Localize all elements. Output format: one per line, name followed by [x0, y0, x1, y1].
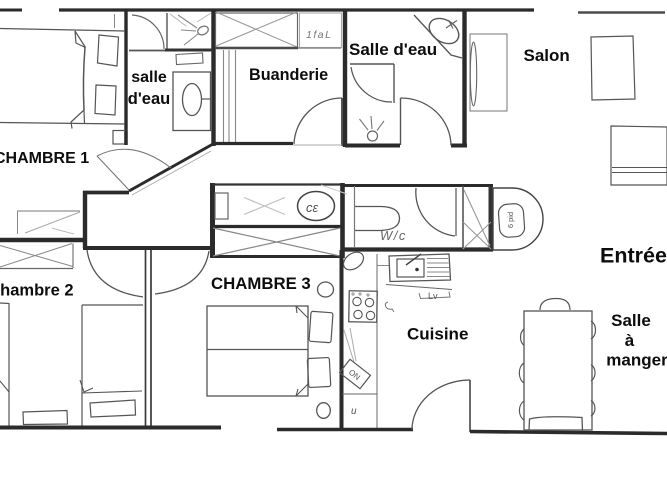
svg-text:1faL: 1faL — [306, 29, 332, 41]
svg-text:cε: cε — [306, 200, 319, 215]
svg-text:Cuisine: Cuisine — [407, 325, 468, 344]
svg-text:Entrée: Entrée — [600, 244, 667, 268]
svg-text:6 pid: 6 pid — [506, 212, 515, 228]
svg-text:Lv: Lv — [428, 291, 438, 301]
svg-text:manger: manger — [606, 351, 667, 370]
svg-text:d'eau: d'eau — [128, 90, 170, 108]
svg-text:u: u — [351, 406, 357, 417]
svg-text:Salle: Salle — [611, 311, 651, 330]
svg-text:Salle d'eau: Salle d'eau — [349, 40, 437, 59]
svg-text:Buanderie: Buanderie — [249, 66, 328, 84]
svg-text:chambre 2: chambre 2 — [0, 282, 74, 300]
svg-text:à: à — [625, 331, 635, 350]
svg-text:Salon: Salon — [524, 46, 570, 65]
svg-text:W/c: W/c — [380, 228, 407, 243]
svg-text:CHAMBRE 1: CHAMBRE 1 — [0, 150, 89, 167]
svg-text:CHAMBRE 3: CHAMBRE 3 — [211, 274, 311, 293]
svg-text:salle: salle — [131, 69, 167, 86]
